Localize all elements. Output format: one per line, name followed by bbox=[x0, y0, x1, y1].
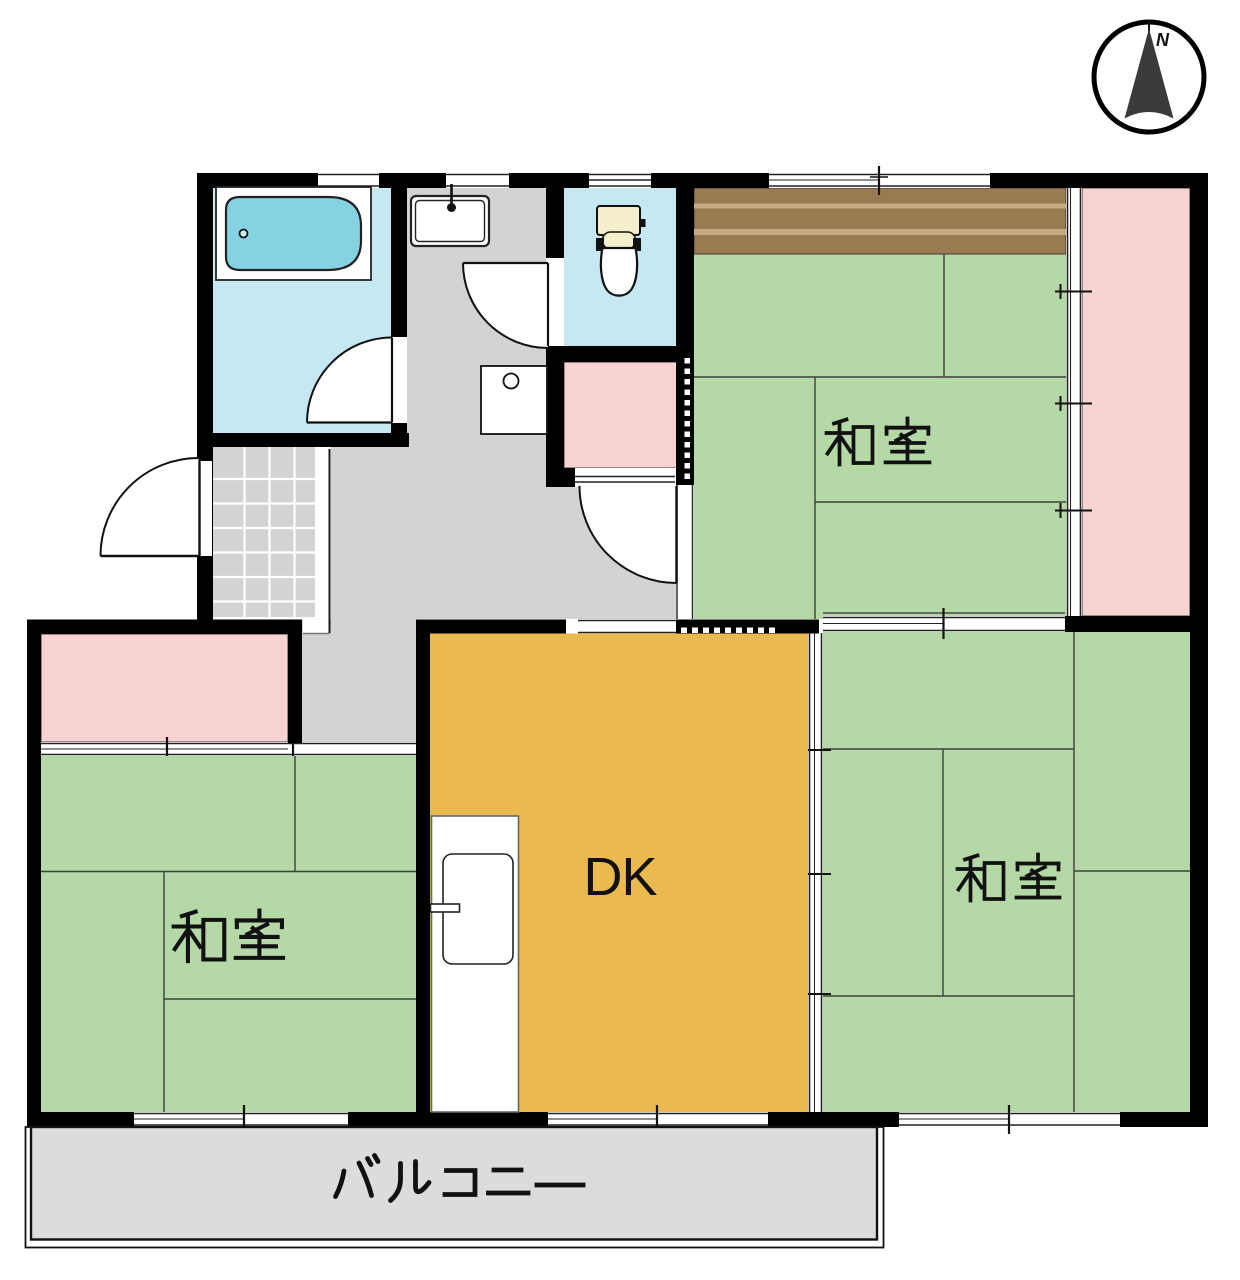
svg-text:N: N bbox=[1156, 30, 1170, 50]
svg-text:DK: DK bbox=[583, 847, 657, 907]
